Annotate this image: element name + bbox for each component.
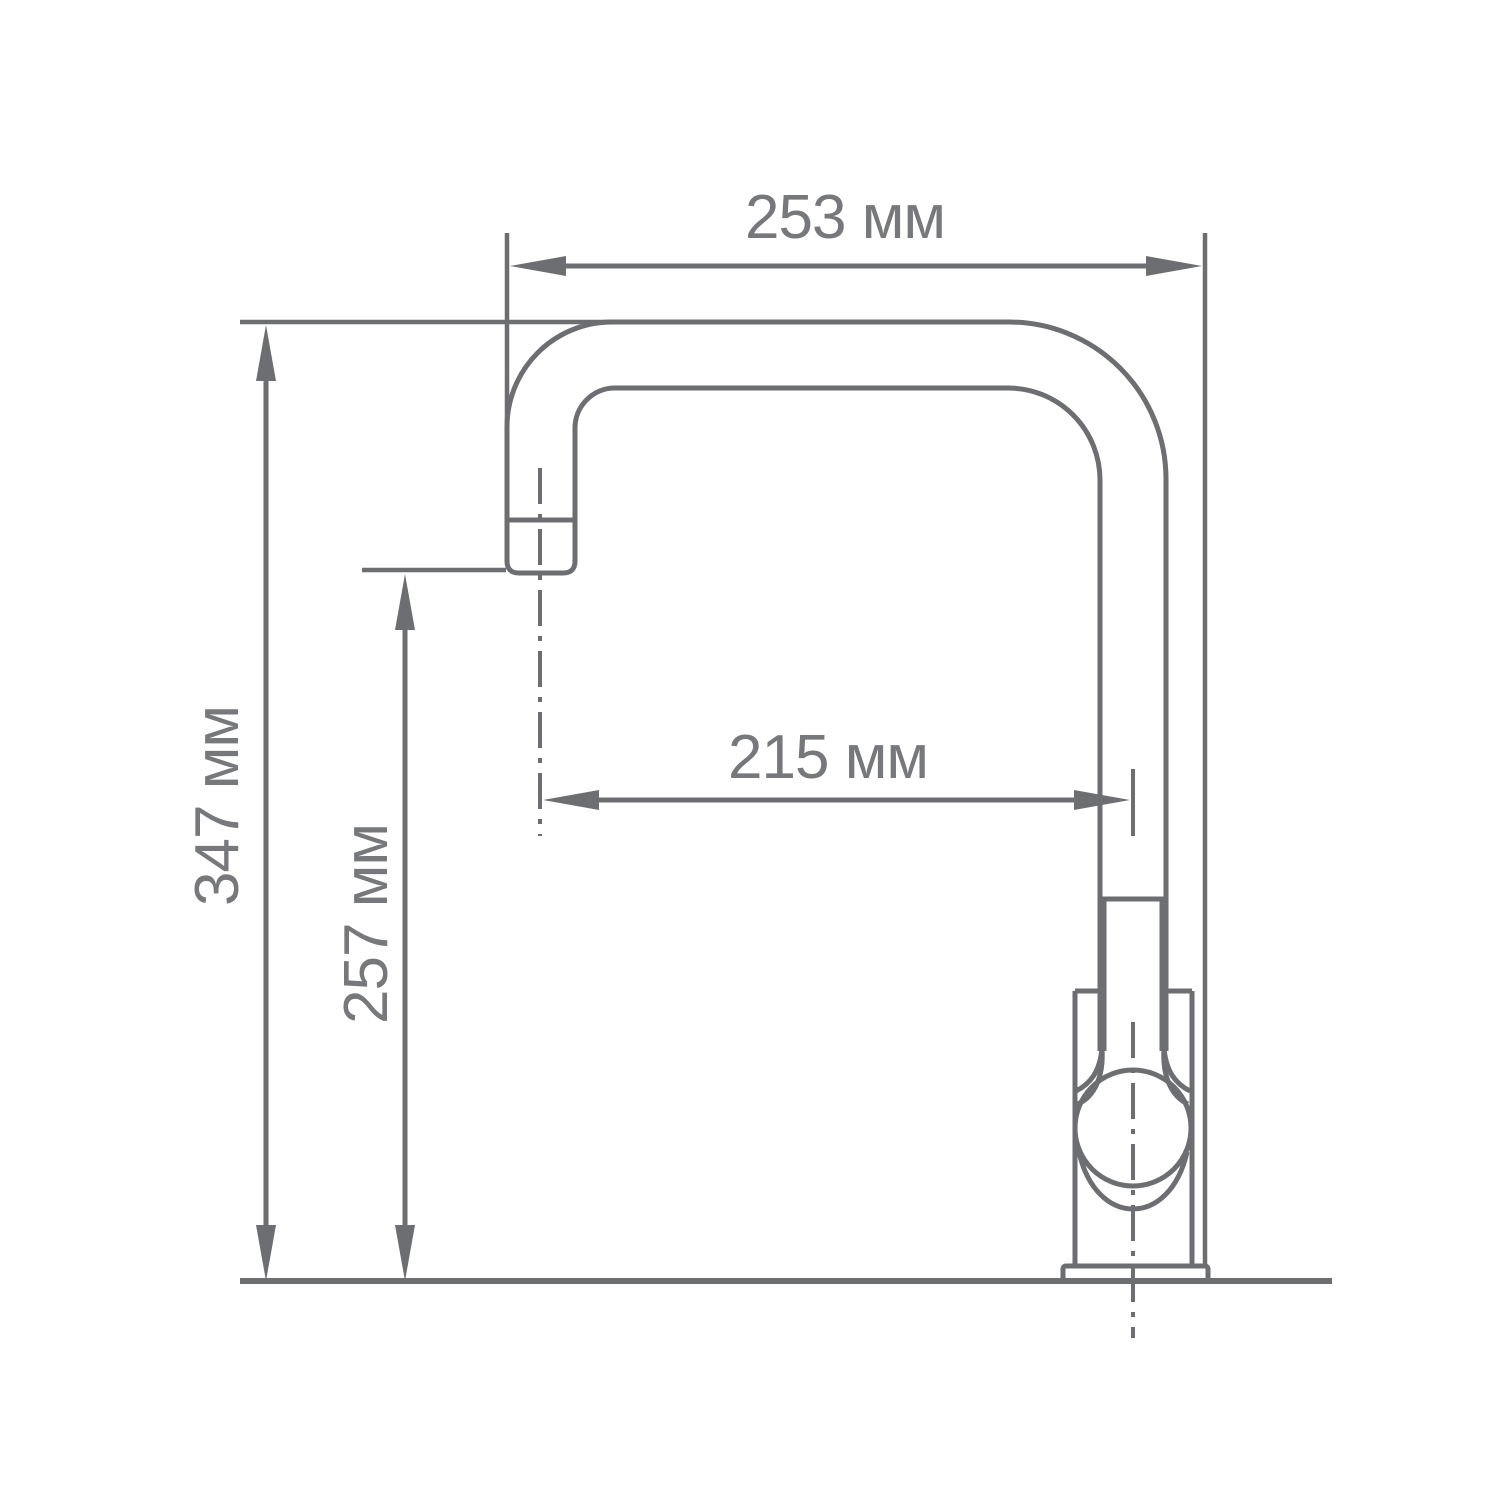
dim-label-overall-height: 347 мм	[183, 706, 252, 906]
center-lines	[540, 468, 1133, 1338]
dimension-spout-height: 257 мм	[332, 570, 506, 1281]
dim-label-overall-width: 253 мм	[745, 183, 945, 252]
arrowhead-left-icon	[543, 790, 599, 810]
faucet-inner-profile	[575, 388, 1100, 899]
dimension-spout-reach: 215 мм	[543, 723, 1130, 810]
faucet-dimension-diagram: 253 мм 347 мм 257 мм 215 мм	[0, 0, 1500, 1500]
arrowhead-right-icon	[1146, 256, 1202, 276]
arrowhead-up-icon	[256, 325, 276, 381]
dim-label-spout-reach: 215 мм	[728, 723, 928, 792]
arrowhead-up-icon	[395, 574, 415, 630]
arrowhead-down-icon	[395, 1225, 415, 1281]
arrowhead-left-icon	[510, 256, 566, 276]
arrowhead-down-icon	[256, 1225, 276, 1281]
dimension-overall-height: 347 мм	[183, 322, 614, 1281]
diagram-canvas: 253 мм 347 мм 257 мм 215 мм	[0, 0, 1500, 1500]
dim-label-spout-height: 257 мм	[332, 824, 401, 1024]
